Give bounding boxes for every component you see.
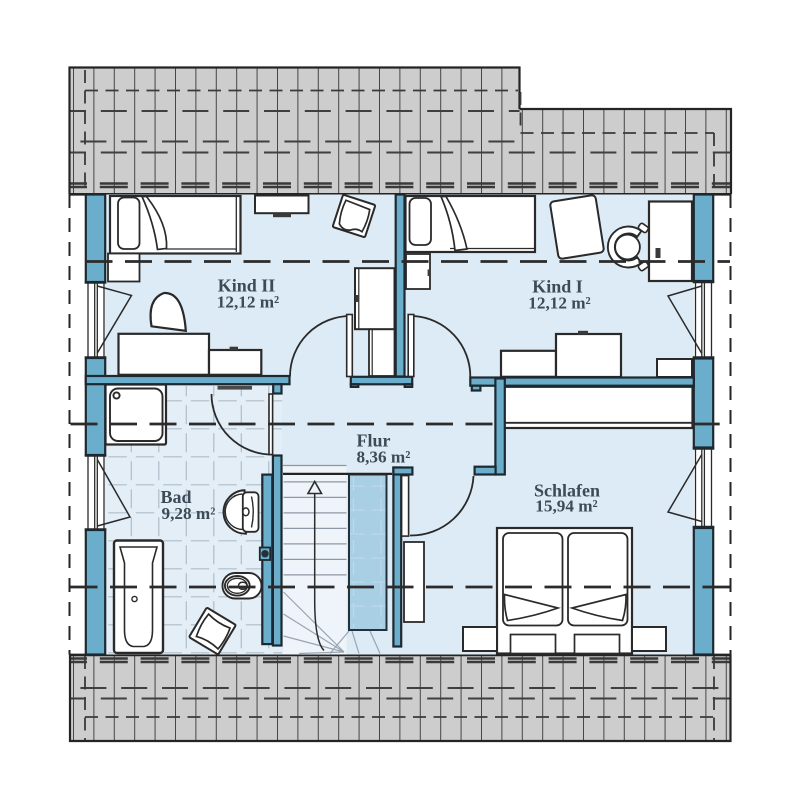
svg-text:12,12 m²: 12,12 m² xyxy=(528,294,590,313)
svg-text:9,28 m²: 9,28 m² xyxy=(162,504,216,523)
svg-text:15,94 m²: 15,94 m² xyxy=(535,497,597,516)
svg-text:8,36 m²: 8,36 m² xyxy=(357,448,411,467)
svg-text:12,12 m²: 12,12 m² xyxy=(217,293,279,312)
